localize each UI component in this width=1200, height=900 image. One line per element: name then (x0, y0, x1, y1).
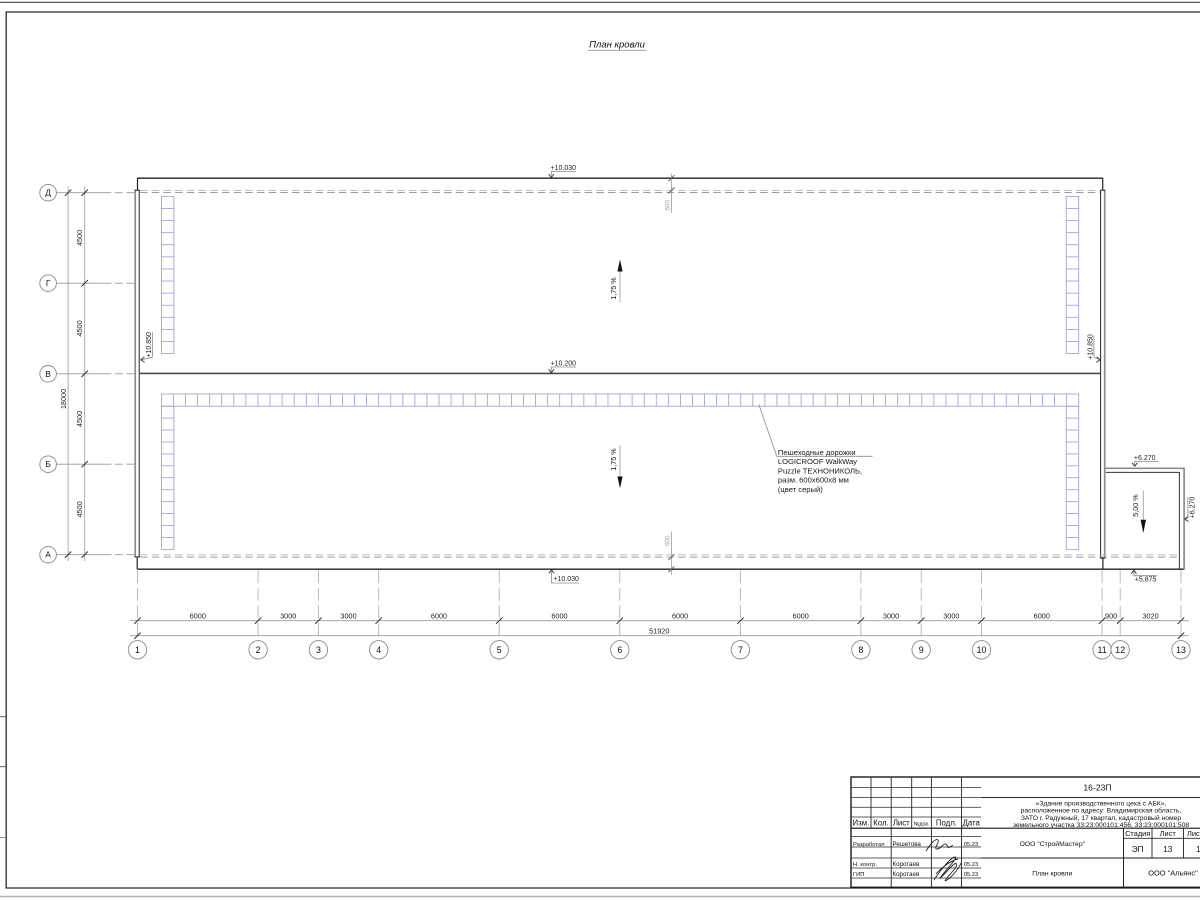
svg-text:4500: 4500 (75, 501, 84, 517)
svg-text:«Здание производственного цеха: «Здание производственного цеха с АБК», (1036, 800, 1167, 807)
svg-text:Н. контр.: Н. контр. (853, 862, 877, 868)
svg-text:5,00 %: 5,00 % (1131, 494, 1140, 517)
svg-text:Коротаев: Коротаев (893, 871, 920, 878)
svg-text:3: 3 (316, 645, 321, 655)
svg-text:План кровли: План кровли (589, 40, 645, 51)
svg-text:05.23: 05.23 (964, 872, 979, 878)
svg-text:5: 5 (497, 645, 502, 655)
svg-text:13: 13 (1176, 645, 1186, 655)
svg-text:№док.: №док. (914, 821, 930, 827)
svg-text:Д: Д (45, 188, 51, 198)
svg-text:3020: 3020 (1142, 611, 1158, 620)
svg-text:16-23П: 16-23П (1083, 783, 1111, 793)
svg-text:ЭП: ЭП (1132, 845, 1144, 854)
svg-text:6000: 6000 (551, 611, 567, 620)
svg-text:9: 9 (919, 645, 924, 655)
svg-text:LOGICROOF WalkWay: LOGICROOF WalkWay (778, 457, 857, 466)
svg-text:6000: 6000 (1034, 611, 1050, 620)
svg-text:2: 2 (256, 645, 261, 655)
svg-text:3000: 3000 (280, 611, 296, 620)
svg-text:600: 600 (665, 200, 672, 211)
svg-text:Лист: Лист (893, 819, 910, 828)
svg-text:Разработал: Разработал (853, 842, 885, 848)
svg-text:8: 8 (858, 645, 863, 655)
svg-text:4: 4 (376, 645, 381, 655)
svg-text:900: 900 (1105, 611, 1117, 620)
svg-text:18000: 18000 (59, 389, 68, 409)
svg-text:+6.270: +6.270 (1190, 497, 1197, 519)
svg-text:4500: 4500 (75, 411, 84, 427)
svg-text:ООО "СтройМастер": ООО "СтройМастер" (1020, 840, 1086, 848)
svg-text:Листов: Листов (1187, 829, 1200, 838)
svg-text:В: В (45, 369, 51, 379)
svg-text:3000: 3000 (883, 611, 899, 620)
svg-text:51920: 51920 (649, 626, 669, 635)
svg-text:13: 13 (1163, 845, 1173, 854)
svg-text:6000: 6000 (672, 611, 688, 620)
svg-text:1: 1 (135, 645, 140, 655)
svg-text:(цвет серый): (цвет серый) (778, 485, 823, 494)
svg-text:разм. 600х600х8 мм: разм. 600х600х8 мм (778, 476, 849, 485)
svg-text:Лист: Лист (1160, 829, 1177, 838)
svg-text:4500: 4500 (75, 230, 84, 246)
svg-text:План кровли: План кровли (1032, 871, 1072, 878)
svg-text:+10.030: +10.030 (553, 576, 579, 583)
svg-text:3000: 3000 (340, 611, 356, 620)
svg-text:05.23: 05.23 (964, 842, 979, 848)
svg-text:Г: Г (46, 278, 51, 288)
svg-text:6000: 6000 (793, 611, 809, 620)
svg-text:Кол.: Кол. (873, 819, 888, 828)
svg-text:Пешеходные дорожки: Пешеходные дорожки (778, 448, 856, 457)
svg-text:12: 12 (1115, 645, 1125, 655)
svg-text:Коротаев: Коротаев (893, 861, 920, 868)
svg-text:1,75 %: 1,75 % (609, 448, 618, 471)
svg-text:+5.875: +5.875 (1135, 577, 1157, 584)
svg-text:А: А (45, 550, 51, 560)
svg-text:ГИП: ГИП (853, 872, 864, 878)
svg-text:+10.030: +10.030 (551, 165, 577, 172)
svg-text:+10.200: +10.200 (551, 360, 577, 367)
svg-text:Б: Б (45, 459, 51, 469)
svg-text:Puzzle ТЕХНОНИКОЛЬ,: Puzzle ТЕХНОНИКОЛЬ, (778, 466, 862, 475)
svg-text:600: 600 (665, 535, 672, 546)
svg-text:ЗАТО г. Радужный, 17 квартал,: ЗАТО г. Радужный, 17 квартал, кадастровы… (1021, 814, 1182, 822)
svg-text:11: 11 (1098, 645, 1107, 655)
svg-text:4500: 4500 (75, 320, 84, 336)
svg-text:Подл.: Подл. (936, 819, 957, 828)
svg-text:6000: 6000 (190, 611, 206, 620)
svg-text:расположенное по адресу: Влади: расположенное по адресу: Владимирская об… (1021, 807, 1182, 815)
svg-text:10: 10 (977, 645, 987, 655)
svg-text:3000: 3000 (943, 611, 959, 620)
svg-text:ООО "Альянс": ООО "Альянс" (1148, 869, 1198, 878)
svg-text:6: 6 (617, 645, 622, 655)
svg-text:6000: 6000 (431, 611, 447, 620)
svg-text:Стадия: Стадия (1125, 829, 1150, 838)
svg-text:1,75 %: 1,75 % (609, 277, 618, 300)
svg-text:Дата: Дата (963, 819, 981, 828)
svg-text:Решетова: Решетова (893, 841, 922, 848)
svg-text:Изм.: Изм. (853, 819, 870, 828)
svg-text:+6.270: +6.270 (1134, 455, 1156, 462)
svg-text:05.23: 05.23 (964, 862, 979, 868)
svg-text:7: 7 (738, 645, 743, 655)
svg-text:14: 14 (1196, 845, 1200, 854)
